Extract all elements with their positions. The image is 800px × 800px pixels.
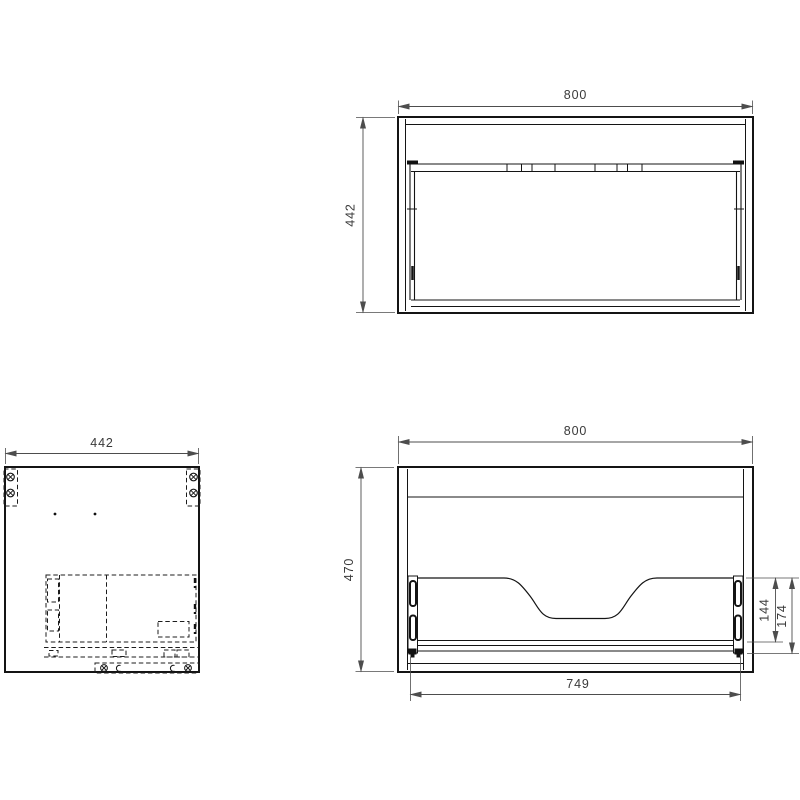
dim-label-top-depth: 442 xyxy=(344,203,358,227)
slide-foot xyxy=(735,649,743,655)
drill-dot xyxy=(54,513,57,516)
dim-label-front-width: 800 xyxy=(564,424,588,438)
dim-top-depth: 442 xyxy=(344,118,396,313)
dim-side-depth: 442 xyxy=(6,436,199,464)
dim-label-drawer-back-height: 144 xyxy=(758,598,772,622)
rail-corner-bracket-right xyxy=(733,161,744,165)
front-view: 800 470 749 144 174 xyxy=(342,424,799,701)
rail-corner-bracket-left xyxy=(407,161,418,165)
dim-label-drawer-opening-width: 749 xyxy=(566,677,590,691)
top-view: 800 442 xyxy=(344,88,754,313)
dim-front-height: 470 xyxy=(342,468,394,672)
top-view-cabinet-outline xyxy=(398,117,753,313)
dim-top-width: 800 xyxy=(399,88,753,114)
slide-foot-stem xyxy=(737,655,741,658)
slide-foot-stem xyxy=(411,655,415,658)
side-view: 442 xyxy=(4,436,200,673)
drill-dot xyxy=(94,513,97,516)
side-view-panel-outline xyxy=(5,467,199,672)
dim-label-side-depth: 442 xyxy=(90,436,114,450)
dim-label-drawer-zone-height: 174 xyxy=(775,604,789,628)
slide-foot xyxy=(409,649,417,655)
dim-label-top-width: 800 xyxy=(564,88,588,102)
dim-front-width: 800 xyxy=(399,424,753,464)
front-view-cabinet-outline xyxy=(398,467,753,672)
technical-drawing: 800 442 xyxy=(0,0,800,800)
drawing-canvas: 800 442 xyxy=(0,0,800,800)
dim-label-front-height: 470 xyxy=(342,558,356,582)
